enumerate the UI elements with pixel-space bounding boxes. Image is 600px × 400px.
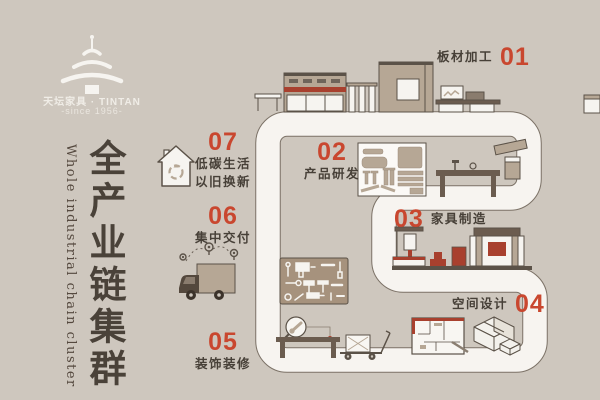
step-05-decoration: 05 装饰装修 (194, 330, 252, 373)
step-01-board-processing: 板材加工 01 (437, 45, 530, 70)
step-04-space-design: 空间设计 04 (452, 292, 545, 317)
step-label: 板材加工 (437, 50, 493, 66)
poster-title-english: Whole industrial chain cluster (63, 144, 78, 388)
board-processing-line-illustration (255, 62, 433, 112)
product-rd-parts-board-illustration (358, 143, 426, 196)
step-label-line2: 以旧换新 (195, 175, 251, 191)
step-number: 05 (208, 330, 238, 355)
step-number: 04 (515, 292, 545, 317)
step-number: 07 (208, 130, 238, 155)
delivery-truck-icon (179, 243, 238, 300)
step-label: 低碳生活 (195, 157, 251, 173)
furniture-manufacturing-machines-illustration (392, 227, 532, 270)
poster-title-chinese: 全产业链集群 (86, 139, 123, 391)
floor-plan-icon (412, 318, 468, 354)
step-number: 01 (500, 45, 530, 70)
infographic-poster: 天坛家具 · TINTAN -since 1956- 全产业链集群 Whole … (0, 0, 600, 400)
step-06-centralized-delivery: 06 集中交付 (194, 204, 252, 247)
step-number: 02 (317, 140, 347, 165)
step-label: 产品研发 (304, 167, 360, 183)
recycle-house-icon (158, 146, 194, 186)
step-02-product-rd: 02 产品研发 (303, 140, 361, 183)
step-label: 空间设计 (452, 297, 508, 313)
step-03-furniture-manufacturing: 03 家具制造 (394, 207, 487, 232)
step-number: 06 (208, 204, 238, 229)
step-07-low-carbon-tradein: 07 低碳生活 以旧换新 (194, 130, 252, 190)
step-label: 装饰装修 (195, 357, 251, 373)
step-label: 家具制造 (431, 212, 487, 228)
step-number: 03 (394, 207, 424, 232)
tools-panel-icon (280, 258, 348, 304)
brand-since: -since 1956- (22, 106, 162, 116)
workstation-desk-illustration (436, 86, 600, 113)
temple-of-heaven-logo-icon (63, 35, 121, 94)
step-label: 集中交付 (195, 231, 251, 247)
